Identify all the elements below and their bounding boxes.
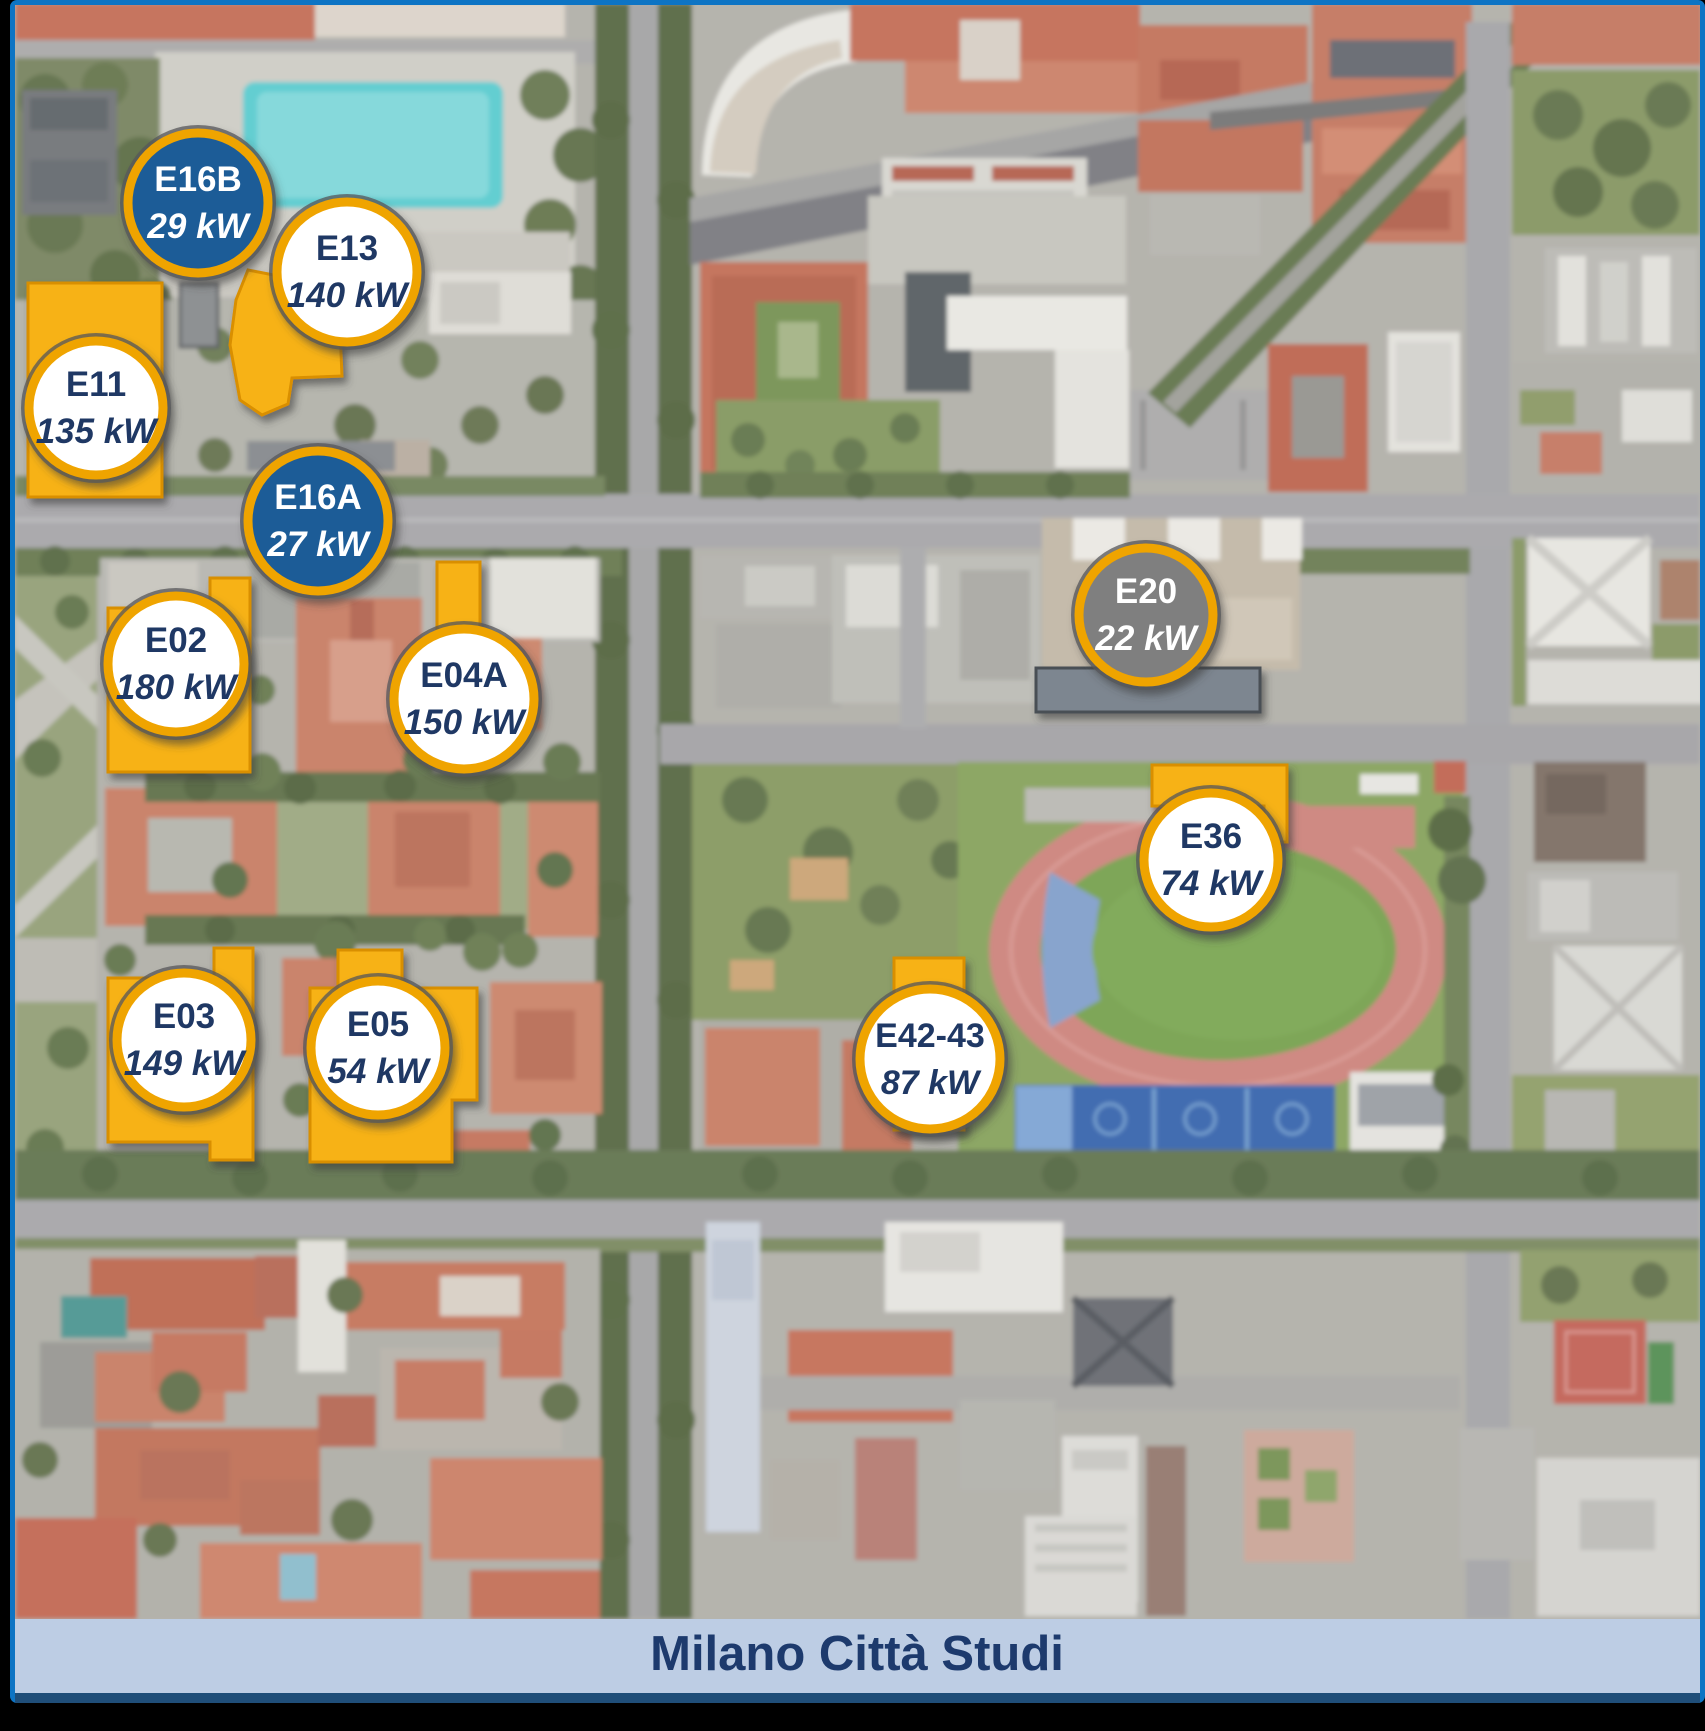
svg-text:140 kW: 140 kW xyxy=(287,276,411,315)
svg-text:E05: E05 xyxy=(347,1005,409,1044)
svg-text:E42-43: E42-43 xyxy=(875,1017,985,1055)
svg-text:E36: E36 xyxy=(1180,817,1242,856)
svg-text:149 kW: 149 kW xyxy=(124,1044,248,1083)
svg-text:54 kW: 54 kW xyxy=(327,1052,431,1091)
svg-text:E16A: E16A xyxy=(274,478,362,517)
svg-text:135 kW: 135 kW xyxy=(36,412,160,451)
svg-text:150 kW: 150 kW xyxy=(404,703,528,742)
svg-text:E11: E11 xyxy=(66,365,126,404)
svg-text:E20: E20 xyxy=(1115,572,1177,611)
svg-text:E04A: E04A xyxy=(420,656,508,695)
svg-text:180 kW: 180 kW xyxy=(116,668,240,707)
svg-text:27 kW: 27 kW xyxy=(266,525,371,564)
svg-text:E16B: E16B xyxy=(154,160,242,199)
svg-text:22 kW: 22 kW xyxy=(1094,619,1199,658)
svg-text:87 kW: 87 kW xyxy=(881,1064,982,1102)
svg-text:E13: E13 xyxy=(316,229,378,268)
svg-text:E02: E02 xyxy=(145,621,207,660)
svg-text:E03: E03 xyxy=(153,997,215,1036)
svg-text:74 kW: 74 kW xyxy=(1160,864,1264,903)
svg-text:Milano Città Studi: Milano Città Studi xyxy=(650,1627,1064,1681)
svg-text:29 kW: 29 kW xyxy=(146,207,251,246)
